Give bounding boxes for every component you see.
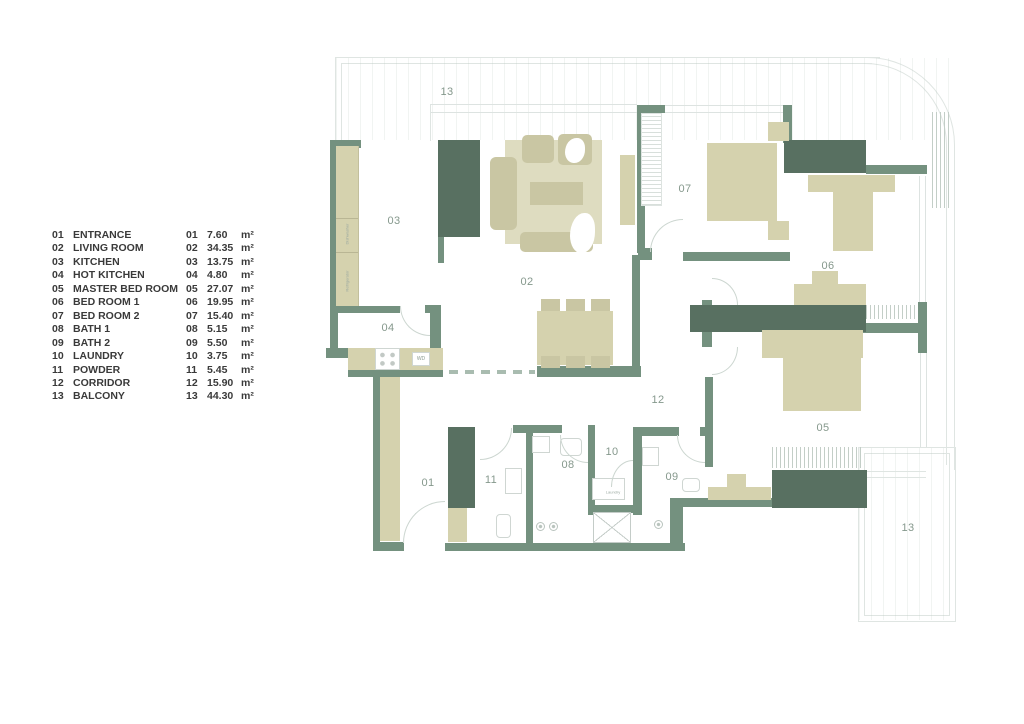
legend-area-value: 15.40 [207, 310, 241, 323]
room-label-kitchen: 03 [387, 215, 400, 227]
bed-master-headboard [762, 330, 863, 358]
legend-row: 10LAUNDRY103.75m² [52, 350, 254, 363]
window-frame-line [867, 471, 926, 478]
master-south-window [772, 447, 862, 468]
room-label-laundry: 10 [605, 446, 618, 458]
room-label-corridor: 12 [651, 394, 664, 406]
wall-block [690, 305, 866, 332]
legend-room-number: 03 [52, 256, 73, 269]
coffee-table [530, 182, 583, 205]
legend-room-name: MASTER BED ROOM [73, 283, 186, 296]
wall [336, 306, 400, 313]
wall [866, 165, 927, 174]
stove [375, 348, 400, 370]
legend-area-unit: m² [241, 283, 254, 296]
legend-area-number: 07 [186, 310, 207, 323]
tv-unit [727, 474, 746, 488]
wall [373, 377, 380, 544]
legend-area-unit: m² [241, 296, 254, 309]
wall [533, 425, 562, 433]
wall [860, 323, 918, 333]
legend-area-value: 15.90 [207, 377, 241, 390]
wall [588, 425, 595, 515]
toilet [682, 478, 700, 492]
legend-area-number: 10 [186, 350, 207, 363]
legend-room-number: 06 [52, 296, 73, 309]
legend-area-value: 5.45 [207, 364, 241, 377]
room-label-bath1: 08 [561, 459, 574, 471]
legend-area-value: 7.60 [207, 229, 241, 242]
room-label-bath2: 09 [665, 471, 678, 483]
legend-room-number: 08 [52, 323, 73, 336]
legend-room-name: BATH 1 [73, 323, 186, 336]
legend-area-unit: m² [241, 310, 254, 323]
wall-block [448, 427, 475, 508]
room-label-master: 05 [816, 422, 829, 434]
bed-bedroom1 [794, 284, 866, 305]
legend-area-value: 5.15 [207, 323, 241, 336]
legend-room-name: BATH 2 [73, 337, 186, 350]
shower-drain [536, 522, 545, 531]
balcony-inner-right-line [946, 163, 947, 465]
legend-room-number: 07 [52, 310, 73, 323]
legend-row: 05MASTER BED ROOM0527.07m² [52, 283, 254, 296]
bedroom2-door-arc [650, 219, 683, 252]
legend-row: 08BATH 1085.15m² [52, 323, 254, 336]
room-label-living: 02 [520, 276, 533, 288]
legend-area-unit: m² [241, 269, 254, 282]
sink [505, 468, 522, 494]
shower-drain [549, 522, 558, 531]
wall [438, 237, 444, 263]
wall [670, 498, 683, 551]
balcony-hatch [932, 112, 952, 208]
bedroom1-south-window [866, 305, 918, 319]
room-label-bedroom1: 06 [821, 260, 834, 272]
legend-area-number: 12 [186, 377, 207, 390]
bedroom1-window [919, 176, 926, 302]
legend-row: 13BALCONY1344.30m² [52, 390, 254, 403]
legend-room-name: LAUNDRY [73, 350, 186, 363]
wall-block [772, 470, 867, 508]
legend-room-name: BALCONY [73, 390, 186, 403]
legend-area-value: 27.07 [207, 283, 241, 296]
legend-room-number: 09 [52, 337, 73, 350]
legend-area-number: 06 [186, 296, 207, 309]
legend-area-unit: m² [241, 323, 254, 336]
counter-divider [336, 218, 358, 219]
room-label-balcony-top: 13 [440, 86, 453, 98]
legend-area-unit: m² [241, 242, 254, 255]
legend-area-unit: m² [241, 350, 254, 363]
room-label-hot-kitchen: 04 [381, 322, 394, 334]
legend-room-name: POWDER [73, 364, 186, 377]
legend-row: 06BED ROOM 10619.95m² [52, 296, 254, 309]
washer-dryer-label: WD [417, 356, 425, 362]
bed-bedroom1-pillow [812, 271, 838, 285]
legend-area-unit: m² [241, 364, 254, 377]
wall [632, 255, 640, 377]
tv-cabinet [620, 155, 635, 225]
sink [532, 436, 550, 453]
legend-area-number: 08 [186, 323, 207, 336]
legend-room-name: LIVING ROOM [73, 242, 186, 255]
dresser [708, 487, 771, 500]
legend-row: 07BED ROOM 20715.40m² [52, 310, 254, 323]
wall [445, 543, 685, 551]
bedroom2-window [665, 105, 783, 113]
legend-area-value: 19.95 [207, 296, 241, 309]
laundry-label: Laundry [606, 490, 620, 495]
legend-row: 04HOT KITCHEN044.80m² [52, 269, 254, 282]
legend-room-number: 05 [52, 283, 73, 296]
legend-area-value: 5.50 [207, 337, 241, 350]
wall [633, 427, 642, 515]
legend-room-name: HOT KITCHEN [73, 269, 186, 282]
living-window [430, 104, 637, 113]
refrigerator-label: Refrigerator [345, 270, 350, 291]
wall-block [438, 140, 480, 237]
entrance-cabinet [448, 508, 467, 542]
legend-room-name: BED ROOM 1 [73, 296, 186, 309]
wall [705, 377, 713, 436]
legend-area-number: 13 [186, 390, 207, 403]
legend-room-number: 01 [52, 229, 73, 242]
bed-bedroom2 [707, 143, 777, 221]
room-label-entrance: 01 [421, 477, 434, 489]
legend-row: 01ENTRANCE017.60m² [52, 229, 254, 242]
wall-block [784, 140, 866, 173]
bed-master [783, 358, 861, 411]
legend-row: 03KITCHEN0313.75m² [52, 256, 254, 269]
room-label-balcony-bottom: 13 [901, 522, 914, 534]
legend-area-number: 01 [186, 229, 207, 242]
room-label-bedroom2: 07 [678, 183, 691, 195]
legend-room-number: 13 [52, 390, 73, 403]
legend-room-name: BED ROOM 2 [73, 310, 186, 323]
laundry-door-arc [611, 460, 633, 487]
legend-area-unit: m² [241, 256, 254, 269]
window-edge-line [430, 105, 431, 141]
dining-chair [541, 356, 560, 368]
wardrobe [808, 175, 895, 192]
toilet [496, 514, 511, 538]
wall [326, 348, 348, 358]
counter-divider [336, 252, 358, 253]
legend-room-number: 10 [52, 350, 73, 363]
sink [642, 447, 659, 466]
shower-drain [654, 520, 663, 529]
legend-room-name: ENTRANCE [73, 229, 186, 242]
legend-area-value: 44.30 [207, 390, 241, 403]
nightstand [768, 221, 789, 240]
closet [641, 113, 662, 206]
legend-row: 11POWDER115.45m² [52, 364, 254, 377]
legend-area-unit: m² [241, 229, 254, 242]
wall [705, 435, 713, 467]
legend-area-number: 09 [186, 337, 207, 350]
dining-chair [566, 356, 585, 368]
legend-area-value: 34.35 [207, 242, 241, 255]
wall [373, 542, 404, 551]
sofa [490, 157, 517, 230]
legend-room-number: 12 [52, 377, 73, 390]
entrance-cabinet [380, 377, 400, 541]
sliding-partition [449, 370, 535, 374]
wardrobe [833, 192, 873, 251]
legend-area-number: 04 [186, 269, 207, 282]
wall [918, 302, 927, 353]
armchair [522, 135, 554, 163]
legend-row: 12CORRIDOR1215.90m² [52, 377, 254, 390]
legend-room-number: 11 [52, 364, 73, 377]
dishwasher-label: Dishwasher [345, 224, 350, 245]
washing-machine [593, 512, 631, 543]
legend-row: 09BATH 2095.50m² [52, 337, 254, 350]
legend-area-value: 3.75 [207, 350, 241, 363]
legend-area-value: 13.75 [207, 256, 241, 269]
legend-area-number: 11 [186, 364, 207, 377]
kitchen-door-arc [400, 306, 430, 336]
legend-area-number: 05 [186, 283, 207, 296]
legend-room-name: KITCHEN [73, 256, 186, 269]
legend-area-number: 03 [186, 256, 207, 269]
wall [633, 427, 679, 436]
legend-row: 02LIVING ROOM0234.35m² [52, 242, 254, 255]
master-window [920, 353, 927, 447]
dining-chair [591, 356, 610, 368]
wall [513, 425, 533, 433]
legend-area-number: 02 [186, 242, 207, 255]
legend-area-value: 4.80 [207, 269, 241, 282]
legend-room-number: 04 [52, 269, 73, 282]
wall [637, 105, 665, 113]
legend-room-name: CORRIDOR [73, 377, 186, 390]
wall [683, 252, 790, 261]
legend-room-number: 02 [52, 242, 73, 255]
legend-area-unit: m² [241, 337, 254, 350]
legend-rows: 01ENTRANCE017.60m²02LIVING ROOM0234.35m²… [52, 229, 254, 404]
floor-plan-page: 01ENTRANCE017.60m²02LIVING ROOM0234.35m²… [0, 0, 1024, 724]
room-label-powder: 11 [485, 474, 497, 486]
nightstand [768, 122, 789, 141]
powder-door-arc [480, 428, 512, 460]
legend: 01ENTRANCE017.60m²02LIVING ROOM0234.35m²… [52, 229, 254, 404]
entrance-door-arc [403, 501, 445, 543]
legend-area-unit: m² [241, 377, 254, 390]
legend-area-unit: m² [241, 390, 254, 403]
